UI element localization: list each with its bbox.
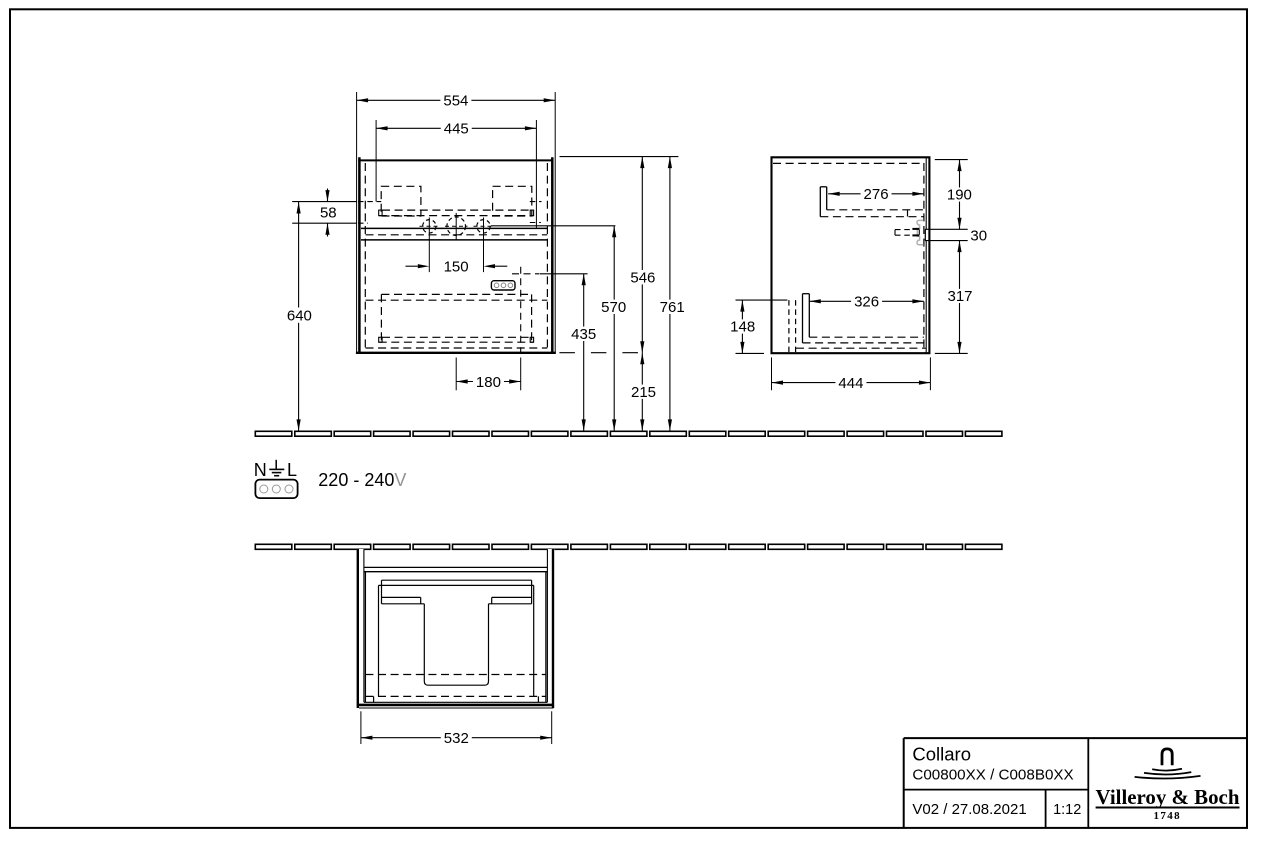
svg-text:445: 445	[444, 121, 469, 138]
svg-text:276: 276	[864, 186, 889, 203]
svg-text:220 - 240V: 220 - 240V	[318, 470, 406, 490]
svg-text:640: 640	[287, 307, 312, 324]
svg-text:148: 148	[730, 319, 755, 336]
svg-text:554: 554	[443, 93, 468, 110]
svg-text:326: 326	[854, 294, 879, 311]
svg-text:570: 570	[601, 299, 626, 316]
svg-text:Collaro: Collaro	[912, 744, 971, 765]
svg-text:435: 435	[571, 326, 596, 343]
svg-text:180: 180	[476, 374, 501, 391]
svg-text:L: L	[287, 460, 297, 480]
svg-text:1748: 1748	[1153, 810, 1181, 822]
svg-text:761: 761	[660, 299, 685, 316]
svg-text:V02 / 27.08.2021: V02 / 27.08.2021	[912, 801, 1026, 818]
svg-text:58: 58	[320, 205, 337, 222]
svg-text:30: 30	[970, 228, 987, 245]
svg-text:C00800XX / C008B0XX: C00800XX / C008B0XX	[912, 766, 1073, 783]
svg-text:317: 317	[947, 288, 972, 305]
svg-text:1:12: 1:12	[1053, 802, 1081, 818]
svg-text:Villeroy & Boch: Villeroy & Boch	[1096, 785, 1240, 809]
svg-text:190: 190	[947, 187, 972, 204]
svg-text:150: 150	[444, 259, 469, 276]
svg-text:546: 546	[630, 270, 655, 287]
svg-text:N: N	[254, 460, 267, 480]
svg-text:215: 215	[631, 384, 656, 401]
svg-text:444: 444	[838, 375, 863, 392]
svg-text:532: 532	[444, 730, 469, 747]
